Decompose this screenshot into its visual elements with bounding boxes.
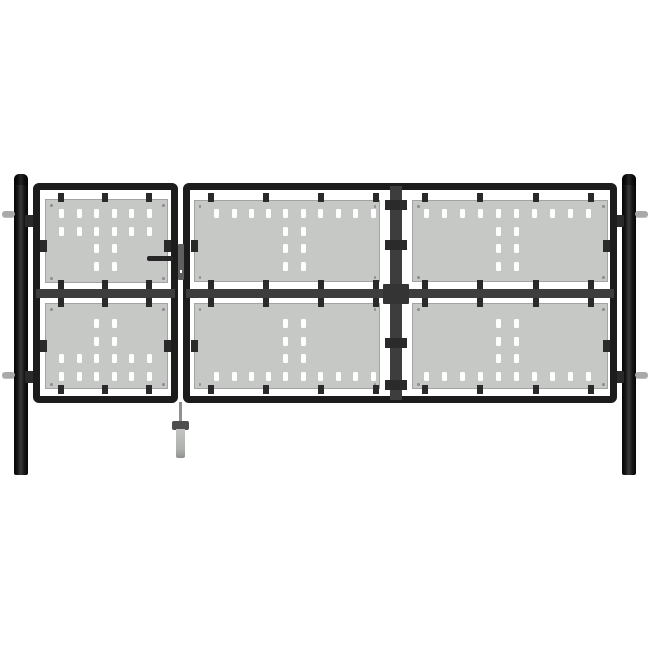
divider-clamp [385,240,407,250]
perforation-slot [112,337,117,346]
panel-clamp [58,193,64,202]
panel-screw-icon [417,205,420,208]
panel-clamp [58,385,64,394]
panel-screw-icon [162,204,165,207]
panel-clamp [263,280,269,289]
panel-screw-icon [50,308,53,311]
gate-panels-layer [0,0,650,650]
drop-bolt-pin [179,402,182,422]
perforation-slot [514,262,519,271]
perforation-slot [371,372,376,381]
perforation-slot [77,354,82,363]
perforation-slot [283,262,288,271]
perforation-slot [249,372,254,381]
perforation-slot [59,227,64,236]
perforation-slot [550,209,555,218]
panel-screw-icon [199,308,202,311]
panel-side-clamp [603,340,610,352]
perforation-slot [478,209,483,218]
perforation-slot [94,372,99,381]
perforation-slot [283,209,288,218]
perforation-slot [283,244,288,253]
perforation-slot [514,227,519,236]
panel-clamp [102,385,108,394]
panel-clamp [146,193,152,202]
double-gate-bottom-right-panel [412,303,608,389]
perforation-slot [94,262,99,271]
perforation-slot [514,372,519,381]
perforation-slot [301,244,306,253]
panel-clamp [208,298,214,307]
panel-screw-icon [417,276,420,279]
perforation-slot [586,372,591,381]
perforation-slot [301,354,306,363]
perforation-slot [301,209,306,218]
perforation-slot [94,244,99,253]
perforation-slot [336,209,341,218]
panel-clamp [208,280,214,289]
perforation-slot [147,227,152,236]
panel-clamp [588,280,594,289]
perforation-slot [301,372,306,381]
panel-clamp [263,298,269,307]
perforation-slot [112,227,117,236]
perforation-slot [112,372,117,381]
panel-screw-icon [374,308,377,311]
perforation-slot [496,262,501,271]
panel-screw-icon [162,277,165,280]
panel-screw-icon [602,276,605,279]
panel-clamp [422,385,428,394]
panel-screw-icon [199,383,202,386]
perforation-slot [232,372,237,381]
divider-clamp [385,200,407,210]
perforation-slot [59,354,64,363]
panel-screw-icon [417,383,420,386]
perforation-slot [496,354,501,363]
perforation-slot [59,372,64,381]
panel-screw-icon [602,383,605,386]
perforation-slot [94,227,99,236]
perforation-slot [460,372,465,381]
perforation-slot [301,262,306,271]
panel-clamp [208,193,214,202]
perforation-slot [496,372,501,381]
panel-clamp [102,298,108,307]
perforation-slot [371,209,376,218]
perforation-slot [283,227,288,236]
panel-clamp [422,193,428,202]
perforation-slot [283,354,288,363]
perforation-slot [353,209,358,218]
perforation-slot [94,319,99,328]
perforation-slot [266,209,271,218]
perforation-slot [496,227,501,236]
panel-clamp [318,280,324,289]
panel-clamp [373,280,379,289]
panel-clamp [102,280,108,289]
panel-clamp [58,280,64,289]
panel-clamp [102,193,108,202]
perforation-slot [147,209,152,218]
perforation-slot [514,354,519,363]
perforation-slot [514,209,519,218]
panel-side-clamp [603,240,610,252]
perforation-slot [460,209,465,218]
panel-clamp [588,298,594,307]
panel-screw-icon [199,205,202,208]
divider-clamp [385,338,407,348]
double-gate-bottom-left-panel [194,303,380,389]
perforation-slot [59,209,64,218]
perforation-slot [568,372,573,381]
panel-screw-icon [50,277,53,280]
perforation-slot [496,244,501,253]
panel-clamp [533,298,539,307]
perforation-slot [129,227,134,236]
perforation-slot [353,372,358,381]
panel-clamp [422,298,428,307]
perforation-slot [112,209,117,218]
pedestrian-top-panel [45,199,168,283]
perforation-slot [249,209,254,218]
perforation-slot [478,372,483,381]
panel-screw-icon [50,383,53,386]
gate-lock [178,244,184,280]
drop-bolt-rod [176,429,185,458]
perforation-slot [77,227,82,236]
perforation-slot [283,372,288,381]
double-gate-top-left-panel [194,200,380,282]
panel-clamp [477,385,483,394]
perforation-slot [496,209,501,218]
panel-clamp [318,193,324,202]
perforation-slot [514,319,519,328]
gate-handle [147,256,173,261]
panel-side-clamp [164,340,171,352]
perforation-slot [496,319,501,328]
perforation-slot [214,209,219,218]
double-gate-top-right-panel [412,200,608,282]
perforation-slot [147,354,152,363]
perforation-slot [514,337,519,346]
panel-screw-icon [162,383,165,386]
panel-screw-icon [162,308,165,311]
panel-clamp [588,385,594,394]
panel-clamp [373,193,379,202]
panel-clamp [533,385,539,394]
panel-clamp [146,298,152,307]
panel-clamp [263,193,269,202]
perforation-slot [568,209,573,218]
panel-screw-icon [374,276,377,279]
perforation-slot [442,372,447,381]
perforation-slot [214,372,219,381]
panel-clamp [477,193,483,202]
perforation-slot [318,209,323,218]
panel-clamp [146,280,152,289]
perforation-slot [112,244,117,253]
perforation-slot [129,354,134,363]
perforation-slot [77,372,82,381]
perforation-slot [318,372,323,381]
perforation-slot [266,372,271,381]
perforation-slot [94,337,99,346]
perforation-slot [283,337,288,346]
panel-side-clamp [164,240,171,252]
panel-screw-icon [417,308,420,311]
perforation-slot [424,372,429,381]
panel-clamp [373,385,379,394]
perforation-slot [112,262,117,271]
product-image-garden-gate [0,0,650,650]
perforation-slot [532,372,537,381]
panel-clamp [263,385,269,394]
pedestrian-bottom-panel [45,303,168,389]
perforation-slot [112,319,117,328]
divider-clamp [385,380,407,390]
panel-screw-icon [374,205,377,208]
panel-side-clamp [191,240,198,252]
panel-side-clamp [191,340,198,352]
perforation-slot [147,372,152,381]
perforation-slot [232,209,237,218]
perforation-slot [301,319,306,328]
panel-clamp [533,193,539,202]
panel-clamp [58,298,64,307]
panel-clamp [477,280,483,289]
panel-clamp [373,298,379,307]
perforation-slot [94,354,99,363]
panel-side-clamp [40,240,47,252]
perforation-slot [442,209,447,218]
panel-clamp [477,298,483,307]
panel-screw-icon [602,205,605,208]
panel-screw-icon [602,308,605,311]
perforation-slot [301,337,306,346]
panel-clamp [318,298,324,307]
perforation-slot [514,244,519,253]
panel-screw-icon [199,276,202,279]
perforation-slot [532,209,537,218]
perforation-slot [336,372,341,381]
perforation-slot [301,227,306,236]
panel-clamp [422,280,428,289]
perforation-slot [112,354,117,363]
panel-clamp [318,385,324,394]
perforation-slot [586,209,591,218]
perforation-slot [129,372,134,381]
perforation-slot [424,209,429,218]
panel-side-clamp [40,340,47,352]
panel-clamp [533,280,539,289]
perforation-slot [129,209,134,218]
panel-clamp [146,385,152,394]
panel-clamp [208,385,214,394]
perforation-slot [496,337,501,346]
lock-keyhole-icon [180,270,182,273]
perforation-slot [550,372,555,381]
panel-clamp [588,193,594,202]
perforation-slot [94,209,99,218]
perforation-slot [77,209,82,218]
perforation-slot [283,319,288,328]
panel-screw-icon [50,204,53,207]
